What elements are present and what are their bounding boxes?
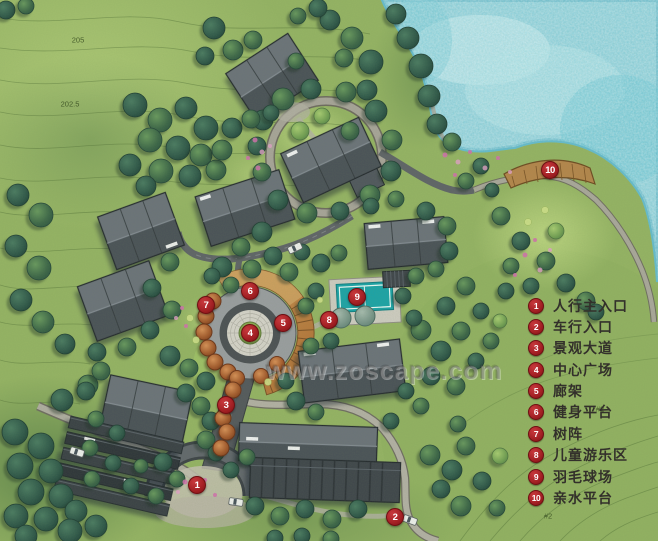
legend-item-1: 1人行主入口 bbox=[528, 298, 654, 313]
legend-marker-number: 9 bbox=[528, 469, 544, 485]
legend-item-8: 8儿童游乐区 bbox=[528, 448, 654, 463]
legend-item-label: 羽毛球场 bbox=[553, 467, 613, 487]
legend-item-label: 儿童游乐区 bbox=[553, 445, 628, 465]
legend-item-label: 健身平台 bbox=[553, 402, 613, 422]
legend-marker-number: 3 bbox=[528, 340, 544, 356]
map-marker-8: 8 bbox=[320, 311, 338, 329]
legend-item-label: 中心广场 bbox=[553, 360, 613, 380]
site-plan: www.zoscape.com 12345678910 205202.5#2#2… bbox=[0, 0, 658, 541]
map-marker-5: 5 bbox=[274, 314, 292, 332]
legend-item-7: 7树阵 bbox=[528, 426, 654, 441]
map-marker-3: 3 bbox=[217, 396, 235, 414]
terrain-label: #2 bbox=[544, 512, 552, 521]
map-marker-2: 2 bbox=[386, 508, 404, 526]
legend-item-10: 10亲水平台 bbox=[528, 491, 654, 506]
legend-marker-number: 2 bbox=[528, 319, 544, 335]
legend-item-label: 人行主入口 bbox=[553, 296, 628, 316]
map-marker-6: 6 bbox=[241, 282, 259, 300]
map-marker-9: 9 bbox=[348, 288, 366, 306]
terrain-label: 205 bbox=[72, 36, 85, 45]
legend-item-6: 6健身平台 bbox=[528, 405, 654, 420]
legend-marker-number: 1 bbox=[528, 298, 544, 314]
terrain-label: 202.5 bbox=[61, 100, 80, 109]
legend-item-label: 树阵 bbox=[553, 424, 583, 444]
legend-marker-number: 5 bbox=[528, 383, 544, 399]
legend-marker-number: 4 bbox=[528, 362, 544, 378]
legend-item-label: 亲水平台 bbox=[553, 488, 613, 508]
map-marker-4: 4 bbox=[241, 324, 259, 342]
legend-item-4: 4中心广场 bbox=[528, 362, 654, 377]
legend-item-label: 景观大道 bbox=[553, 338, 613, 358]
legend: 1人行主入口2车行入口3景观大道4中心广场5廊架6健身平台7树阵8儿童游乐区9羽… bbox=[528, 298, 654, 512]
legend-item-label: 廊架 bbox=[553, 381, 583, 401]
legend-item-9: 9羽毛球场 bbox=[528, 469, 654, 484]
legend-item-2: 2车行入口 bbox=[528, 319, 654, 334]
legend-marker-number: 8 bbox=[528, 447, 544, 463]
legend-item-3: 3景观大道 bbox=[528, 341, 654, 356]
map-marker-10: 10 bbox=[541, 161, 559, 179]
legend-marker-number: 10 bbox=[528, 490, 544, 506]
map-marker-7: 7 bbox=[197, 296, 215, 314]
legend-item-5: 5廊架 bbox=[528, 384, 654, 399]
legend-marker-number: 7 bbox=[528, 426, 544, 442]
legend-marker-number: 6 bbox=[528, 404, 544, 420]
legend-item-label: 车行入口 bbox=[553, 317, 613, 337]
map-marker-1: 1 bbox=[188, 476, 206, 494]
